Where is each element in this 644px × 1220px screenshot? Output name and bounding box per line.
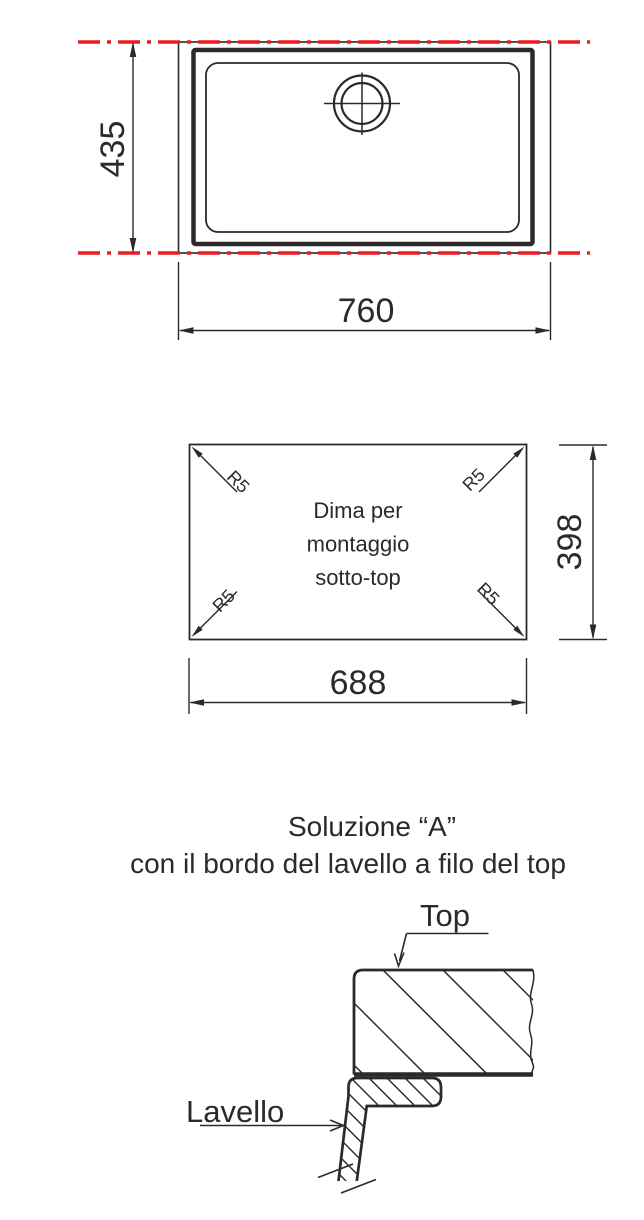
drain	[324, 73, 400, 136]
top-label: Top	[420, 898, 470, 933]
note-line-1: Dima per	[313, 498, 402, 523]
break-line-1	[318, 1164, 353, 1178]
corner-leader-top-left: R5	[192, 447, 254, 497]
lavello-label: Lavello	[186, 1094, 284, 1129]
technical-drawing-page: 435 760 R5 R5 R5	[0, 0, 644, 1220]
arrowhead-down	[590, 625, 597, 640]
corner-leader-bottom-left: R5	[192, 586, 239, 637]
countertop-break-edge	[529, 970, 533, 1075]
dim-height-label: 398	[551, 514, 589, 571]
arrowhead-left	[179, 327, 194, 334]
template-note: Dima per montaggio sotto-top	[307, 498, 410, 590]
dim-width-688: 688	[189, 658, 527, 714]
corner-leader-top-right: R5	[459, 447, 525, 495]
radius-label-tr: R5	[459, 465, 489, 495]
leader-line	[479, 451, 520, 492]
lavello-leader: Lavello	[186, 1094, 344, 1131]
corner-leader-bottom-right: R5	[473, 579, 524, 637]
arrowhead-up	[130, 42, 137, 57]
dim-height-435: 435	[94, 42, 136, 253]
arrowhead-right	[512, 699, 527, 706]
arrowhead-up	[590, 445, 597, 460]
top-leader: Top	[395, 898, 489, 966]
dim-width-label: 760	[338, 292, 395, 330]
section-view: Soluzione “A” con il bordo del lavello a…	[130, 767, 566, 1220]
dim-height-label: 435	[94, 121, 132, 178]
top-view: 435 760	[78, 42, 590, 340]
dim-height-398: 398	[551, 445, 607, 640]
sink-rim-edge	[194, 50, 533, 244]
sink-outer-edge	[179, 42, 551, 253]
countertop-outline	[354, 970, 533, 1075]
break-line-2	[341, 1180, 376, 1194]
template-view: R5 R5 R5 R5 Dima per montaggio sotto-top	[189, 445, 607, 715]
dim-width-760: 760	[179, 262, 551, 340]
arrowhead-down	[130, 238, 137, 253]
arrowhead-left	[189, 699, 204, 706]
radius-label-tl: R5	[223, 467, 253, 497]
note-line-3: sotto-top	[315, 565, 401, 590]
radius-label-br: R5	[473, 579, 503, 609]
note-line-2: montaggio	[307, 532, 410, 557]
dim-width-label: 688	[330, 664, 387, 702]
section-subtitle: con il bordo del lavello a filo del top	[130, 848, 566, 879]
radius-label-bl: R5	[209, 586, 239, 616]
technical-drawing-canvas: 435 760 R5 R5 R5	[0, 0, 644, 1220]
sink-outline	[339, 1078, 442, 1181]
sink-section	[300, 937, 560, 1220]
arrowhead-right	[536, 327, 551, 334]
section-title: Soluzione “A”	[288, 811, 456, 842]
